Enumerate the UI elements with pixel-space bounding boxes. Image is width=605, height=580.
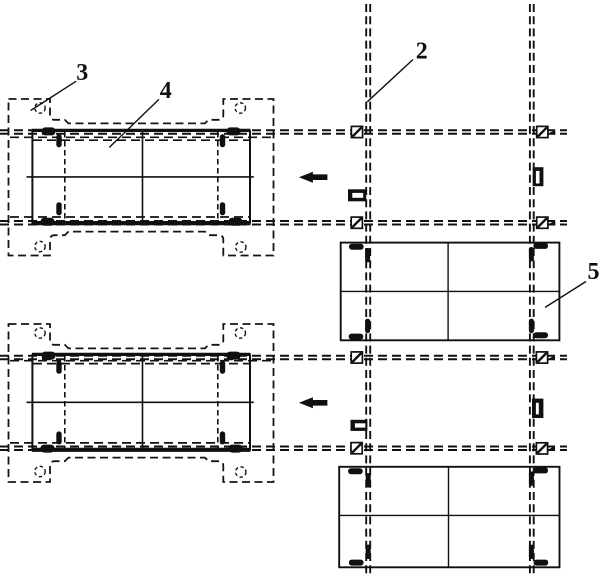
svg-text:3: 3 <box>76 60 88 86</box>
svg-text:4: 4 <box>160 78 172 104</box>
svg-text:2: 2 <box>416 38 428 64</box>
svg-text:5: 5 <box>588 259 600 285</box>
